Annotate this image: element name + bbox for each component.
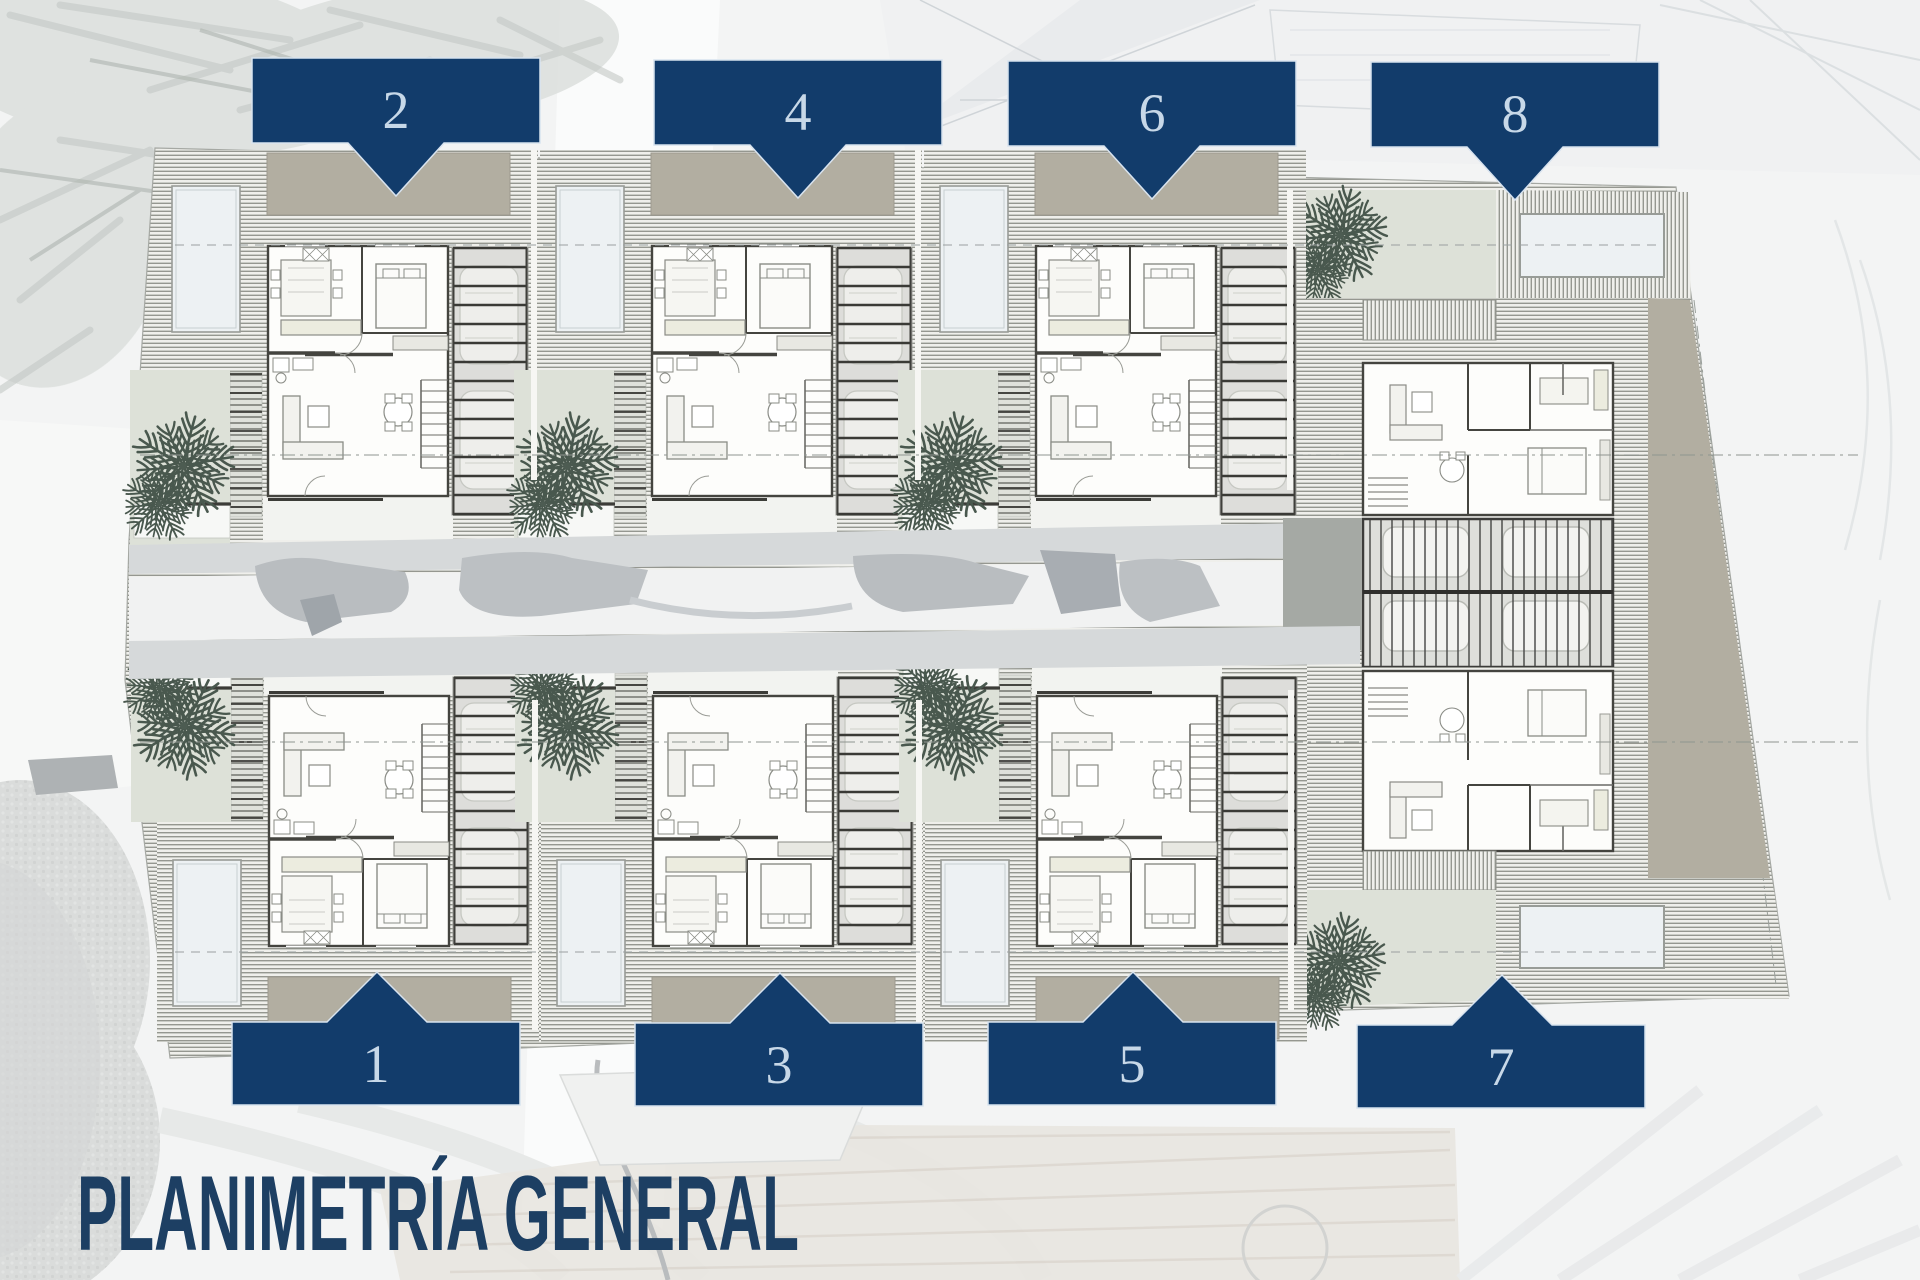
svg-text:1: 1 (363, 1034, 390, 1094)
svg-text:4: 4 (785, 82, 812, 142)
svg-text:2: 2 (383, 80, 410, 140)
svg-text:8: 8 (1502, 84, 1529, 144)
svg-text:3: 3 (766, 1035, 793, 1095)
svg-text:6: 6 (1139, 83, 1166, 143)
svg-text:PLANIMETRÍA GENERAL: PLANIMETRÍA GENERAL (77, 1153, 799, 1273)
svg-text:5: 5 (1119, 1034, 1146, 1094)
svg-text:7: 7 (1488, 1037, 1515, 1097)
